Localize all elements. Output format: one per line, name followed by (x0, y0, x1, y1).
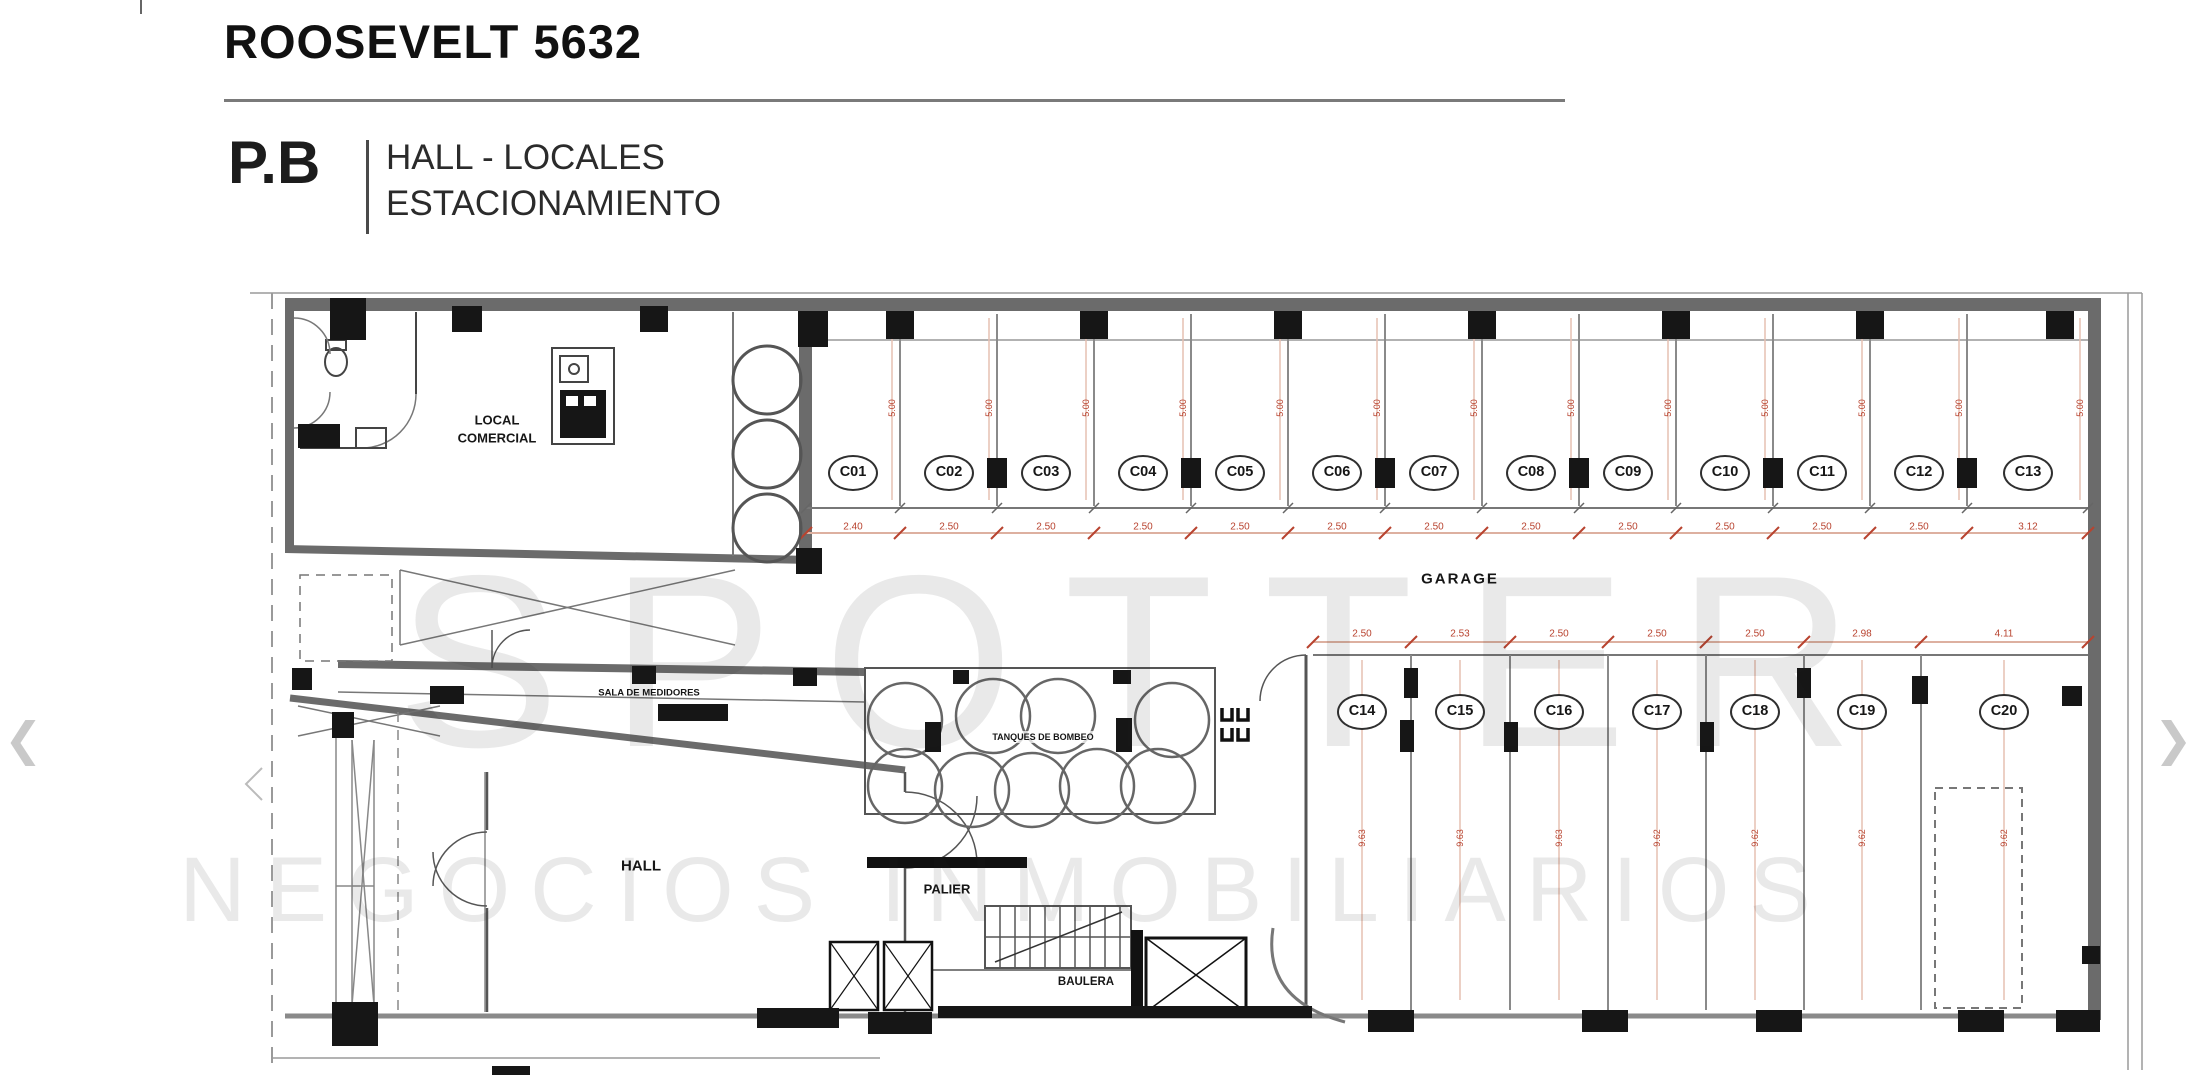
stall-width-dim: 2.50 (1715, 522, 1734, 533)
room-label-hall: HALL (621, 858, 661, 875)
elevator (1146, 938, 1246, 1012)
stall-depth-dim: 9.63 (1455, 829, 1465, 847)
stall-width-dim: 3.12 (2018, 522, 2037, 533)
stall-width-dim: 2.50 (1036, 522, 1055, 533)
parking-spot-label: C01 (828, 455, 878, 491)
hall-sloped-wall (290, 698, 905, 770)
parking-spot-label: C08 (1506, 455, 1556, 491)
stall-depth-dim: 9.63 (1554, 829, 1564, 847)
stall-width-dim: 2.50 (1549, 629, 1568, 640)
stall-width-dim: 2.50 (1618, 522, 1637, 533)
bottom-dimension-line (1307, 636, 2094, 648)
room-label-sala-de-medidores: SALA DE MEDIDORES (598, 688, 700, 699)
stall-width-dim: 2.50 (1521, 522, 1540, 533)
stall-depth-dim: 9.62 (1999, 829, 2009, 847)
gallery-prev-icon[interactable]: ❮ (4, 712, 43, 766)
stall-depth-dim: 5.00 (1469, 399, 1479, 417)
stall-depth-dim: 5.00 (1954, 399, 1964, 417)
stall-width-dim: 2.50 (1327, 522, 1346, 533)
plan-subtitle-line1: HALL - LOCALES (386, 138, 665, 178)
top-dimension-line (800, 527, 2094, 539)
stall-width-dim: 4.11 (1995, 629, 2014, 640)
parking-spot-label: C11 (1797, 455, 1847, 491)
stall-width-dim: 2.98 (1852, 629, 1871, 640)
stall-depth-dim: 5.00 (1566, 399, 1576, 417)
walls (285, 298, 2101, 1020)
parking-spot-label: C09 (1603, 455, 1653, 491)
stall-depth-dim: 5.00 (1372, 399, 1382, 417)
stall-depth-dim: 5.00 (1760, 399, 1770, 417)
stall-width-dim: 2.50 (1745, 629, 1764, 640)
parking-spot-label: C10 (1700, 455, 1750, 491)
stall-width-dim: 2.40 (843, 522, 862, 533)
stall-depth-dim: 5.00 (1663, 399, 1673, 417)
stall-width-dim: 2.50 (939, 522, 958, 533)
stall-depth-dim: 9.62 (1857, 829, 1867, 847)
parking-spot-label: C12 (1894, 455, 1944, 491)
header-divider (366, 140, 369, 234)
parking-spot-label: C04 (1118, 455, 1168, 491)
stall-width-dim: 2.50 (1647, 629, 1666, 640)
stall-depth-dim: 5.00 (1857, 399, 1867, 417)
plan-title: ROOSEVELT 5632 (224, 14, 642, 69)
stall-depth-dim: 9.62 (1750, 829, 1760, 847)
parking-spot-label: C19 (1837, 694, 1887, 730)
room-label-garage: GARAGE (1421, 571, 1499, 588)
door-arc (1260, 655, 1306, 701)
tanques-room (865, 668, 1215, 827)
elevator-pair (830, 942, 932, 1010)
stall-depth-dim: 5.00 (1275, 399, 1285, 417)
stall-width-dim: 2.50 (1424, 522, 1443, 533)
parking-spot-label: C17 (1632, 694, 1682, 730)
palier-bar (867, 857, 1027, 868)
toilet-icon (325, 348, 347, 376)
shaft-circles (733, 312, 801, 562)
parking-spot-label: C13 (2003, 455, 2053, 491)
parking-spot-label: C02 (924, 455, 974, 491)
parking-spot-label: C15 (1435, 694, 1485, 730)
bottom-wall-segments (332, 1002, 2100, 1075)
title-rule (224, 99, 1565, 102)
parking-spot-label: C07 (1409, 455, 1459, 491)
parking-spot-label: C06 (1312, 455, 1362, 491)
parking-spot-label: C20 (1979, 694, 2029, 730)
stall-depth-dim: 5.00 (887, 399, 897, 417)
stall-width-dim: 2.50 (1352, 629, 1371, 640)
room-label-palier: PALIER (924, 882, 971, 897)
stairs (930, 906, 1131, 1008)
stall-width-dim: 2.50 (1812, 522, 1831, 533)
pump-icons (1222, 708, 1248, 740)
floor-code: P.B (228, 128, 320, 197)
room-label-local-comercial: COMERCIAL (458, 431, 537, 446)
gallery-next-icon[interactable]: ❯ (2154, 712, 2193, 766)
stall-width-dim: 2.53 (1450, 629, 1469, 640)
stall-depth-dim: 5.00 (1178, 399, 1188, 417)
stall-width-dim: 2.50 (1133, 522, 1152, 533)
parking-spot-label: C05 (1215, 455, 1265, 491)
plan-subtitle-line2: ESTACIONAMIENTO (386, 184, 721, 224)
stall-depth-dim: 9.63 (1357, 829, 1367, 847)
parking-spot-label: C16 (1534, 694, 1584, 730)
room-label-tanques-de-bombeo: TANQUES DE BOMBEO (990, 731, 1095, 743)
parking-spot-label: C18 (1730, 694, 1780, 730)
stall-depth-dim: 5.00 (1081, 399, 1091, 417)
stall-width-dim: 2.50 (1909, 522, 1928, 533)
dashed-zone-c20 (1935, 788, 2022, 1008)
ramp-area (298, 570, 735, 1012)
stall-width-dim: 2.50 (1230, 522, 1249, 533)
stall-depth-dim: 5.00 (2075, 399, 2085, 417)
room-label-baulera: BAULERA (1058, 976, 1114, 988)
floorplan-linework (0, 0, 2194, 1080)
parking-bottom-row (1306, 655, 2088, 1014)
room-label-local-comercial: LOCAL (475, 413, 520, 428)
stall-depth-dim: 5.00 (984, 399, 994, 417)
stall-depth-dim: 9.62 (1652, 829, 1662, 847)
parking-spot-label: C03 (1021, 455, 1071, 491)
parking-spot-label: C14 (1337, 694, 1387, 730)
